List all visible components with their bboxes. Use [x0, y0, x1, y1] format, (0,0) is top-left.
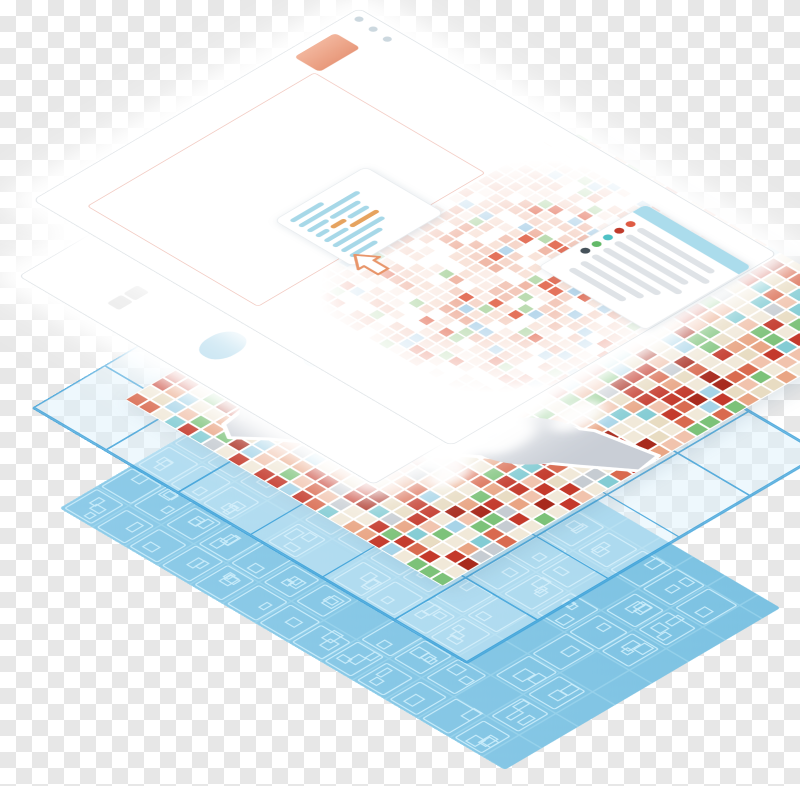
water-patch: [191, 327, 255, 364]
legend-dot: [590, 240, 604, 248]
legend-dot: [578, 247, 592, 255]
map-zoom-controls: [107, 285, 149, 310]
window-dot: [353, 15, 366, 22]
window-dot: [381, 35, 394, 42]
legend-dot: [601, 233, 615, 241]
legend-dot: [612, 227, 626, 235]
legend-dot: [623, 220, 637, 228]
browser-logo-badge: [294, 33, 360, 72]
window-dot: [367, 25, 380, 32]
illustration-stage: [0, 0, 800, 786]
